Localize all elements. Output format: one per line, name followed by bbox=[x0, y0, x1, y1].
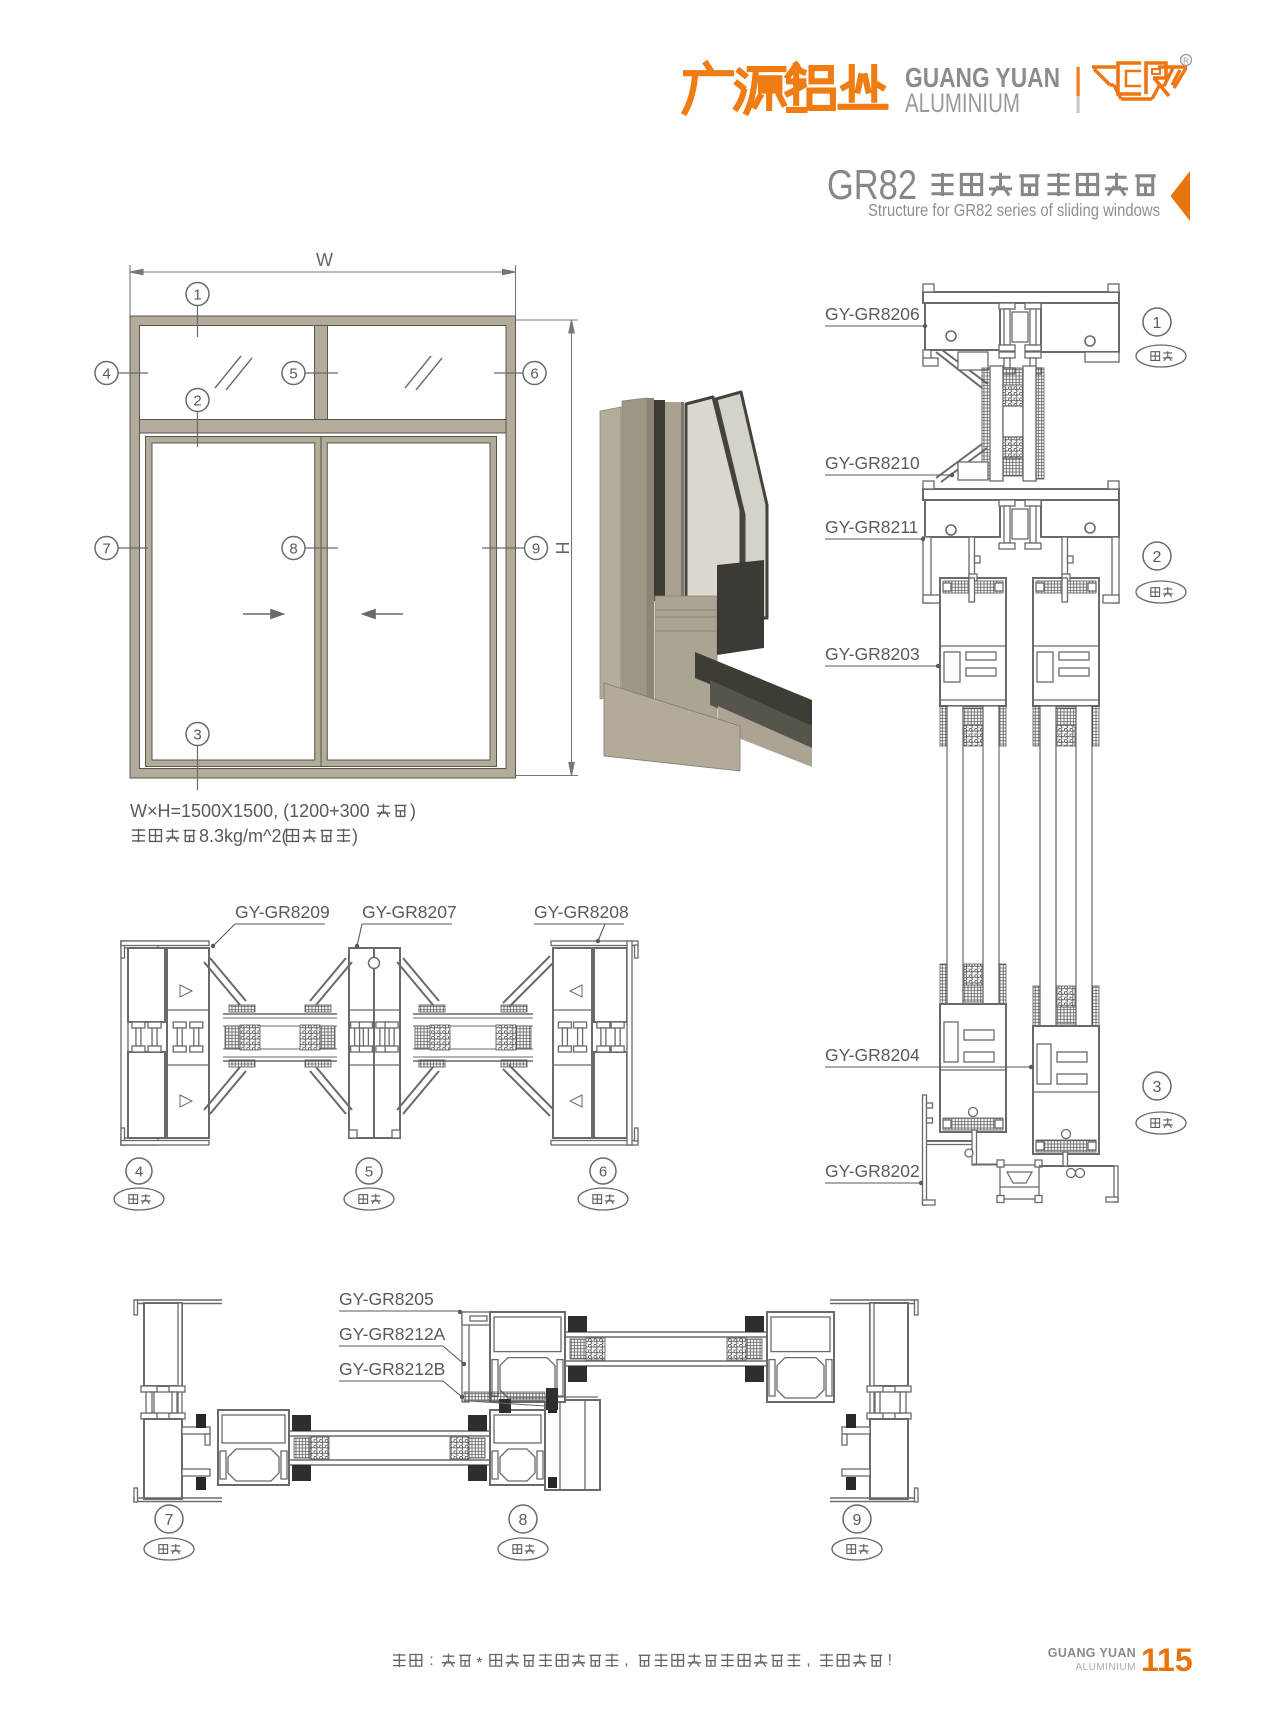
svg-text:GY-GR8204: GY-GR8204 bbox=[825, 1045, 920, 1065]
svg-text:5: 5 bbox=[289, 365, 297, 382]
svg-text:9: 9 bbox=[532, 540, 540, 557]
svg-text:GY-GR8210: GY-GR8210 bbox=[825, 453, 920, 473]
svg-text:115: 115 bbox=[1141, 1642, 1193, 1678]
svg-text:8: 8 bbox=[519, 1512, 528, 1529]
svg-text:GY-GR8206: GY-GR8206 bbox=[825, 304, 920, 324]
svg-text:6: 6 bbox=[599, 1163, 607, 1180]
svg-text:3: 3 bbox=[1153, 1079, 1162, 1096]
svg-text:2: 2 bbox=[1153, 549, 1162, 566]
svg-text:1: 1 bbox=[193, 286, 201, 303]
svg-text:,: , bbox=[806, 1652, 810, 1669]
svg-text:!: ! bbox=[888, 1652, 892, 1669]
svg-text:7: 7 bbox=[165, 1512, 174, 1529]
svg-text:GY-GR8203: GY-GR8203 bbox=[825, 644, 920, 664]
svg-text:8: 8 bbox=[289, 540, 297, 557]
svg-text:W: W bbox=[316, 250, 333, 270]
svg-text:GUANG YUAN: GUANG YUAN bbox=[1048, 1646, 1136, 1660]
svg-text:GY-GR8208: GY-GR8208 bbox=[534, 902, 629, 922]
svg-text:GY-GR8212A: GY-GR8212A bbox=[339, 1324, 446, 1344]
svg-text:): ) bbox=[410, 801, 416, 821]
svg-text:6: 6 bbox=[530, 365, 538, 382]
svg-text:3: 3 bbox=[193, 726, 201, 743]
svg-text:9: 9 bbox=[853, 1512, 862, 1529]
svg-text:ALUMINIUM: ALUMINIUM bbox=[1075, 1662, 1136, 1673]
svg-text:2: 2 bbox=[193, 392, 201, 409]
svg-text:1: 1 bbox=[1153, 315, 1162, 332]
svg-text:GY-GR8202: GY-GR8202 bbox=[825, 1161, 920, 1181]
svg-text:*: * bbox=[476, 1655, 482, 1672]
svg-text:H: H bbox=[552, 542, 572, 555]
svg-text:4: 4 bbox=[135, 1163, 143, 1180]
svg-text:,: , bbox=[624, 1652, 628, 1669]
svg-text:R: R bbox=[1183, 57, 1189, 66]
svg-text:GY-GR8211: GY-GR8211 bbox=[825, 517, 918, 537]
svg-text:): ) bbox=[352, 826, 358, 846]
svg-text::: : bbox=[429, 1652, 433, 1669]
svg-text:GY-GR8212B: GY-GR8212B bbox=[339, 1359, 445, 1379]
svg-text:5: 5 bbox=[365, 1163, 373, 1180]
svg-text:GY-GR8207: GY-GR8207 bbox=[362, 902, 457, 922]
svg-text:W×H=1500X1500, (1200+300: W×H=1500X1500, (1200+300 bbox=[130, 801, 370, 821]
svg-text:4: 4 bbox=[102, 365, 110, 382]
svg-text:GY-GR8209: GY-GR8209 bbox=[235, 902, 330, 922]
svg-text:7: 7 bbox=[102, 540, 110, 557]
svg-text:8.3kg/m^2(: 8.3kg/m^2( bbox=[199, 826, 287, 846]
svg-text:GY-GR8205: GY-GR8205 bbox=[339, 1289, 434, 1309]
svg-text:ALUMINIUM: ALUMINIUM bbox=[905, 88, 1020, 118]
svg-text:Structure for GR82 series of s: Structure for GR82 series of sliding win… bbox=[868, 200, 1160, 220]
